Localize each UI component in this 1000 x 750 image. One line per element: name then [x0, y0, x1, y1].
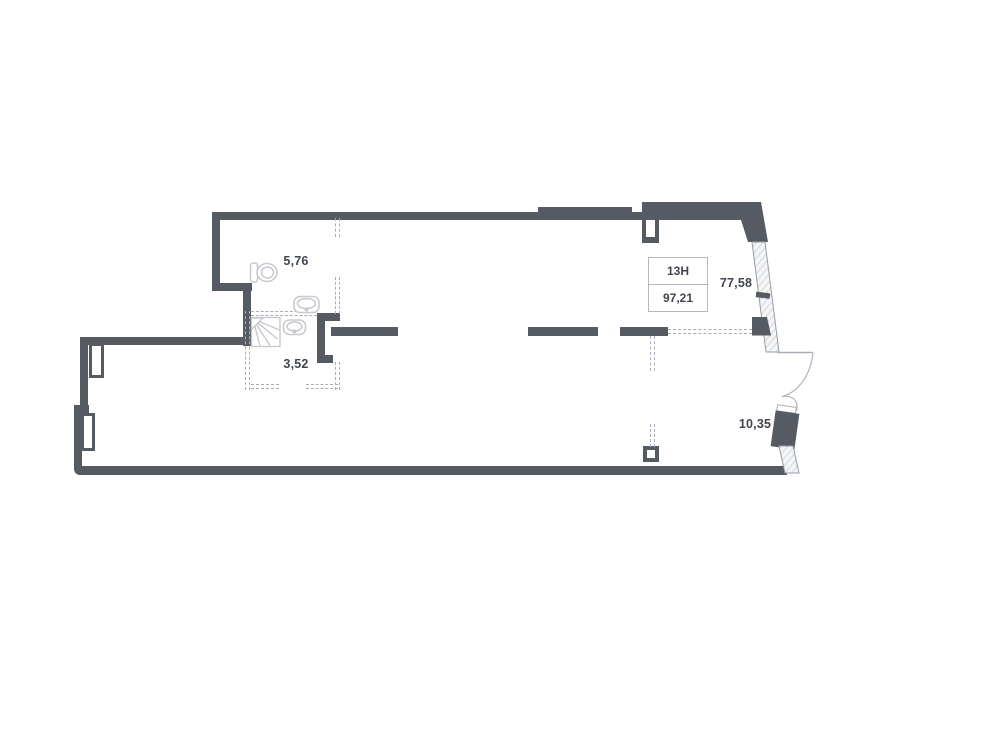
area-label-wc: 5,76: [266, 254, 326, 270]
unit-total-area: 97,21: [649, 285, 707, 311]
shower-tray: [252, 318, 281, 347]
sink-fixture-large: [294, 297, 319, 313]
wall-corner-block: [642, 202, 768, 242]
area-label-balcony: 10,35: [725, 417, 785, 433]
unit-number: 13Н: [649, 258, 707, 285]
plan-drawing-layer: [0, 0, 1000, 750]
area-label-shower: 3,52: [266, 357, 326, 373]
floor-plan: 5,76 3,52 77,58 10,35 13Н 97,21: [0, 0, 1000, 750]
unit-info-box: 13Н 97,21: [648, 257, 708, 312]
area-label-living: 77,58: [706, 276, 766, 292]
sink-fixture-small: [284, 320, 306, 335]
door-swing-arc: [784, 353, 814, 397]
window-glazing-lower: [779, 446, 799, 473]
